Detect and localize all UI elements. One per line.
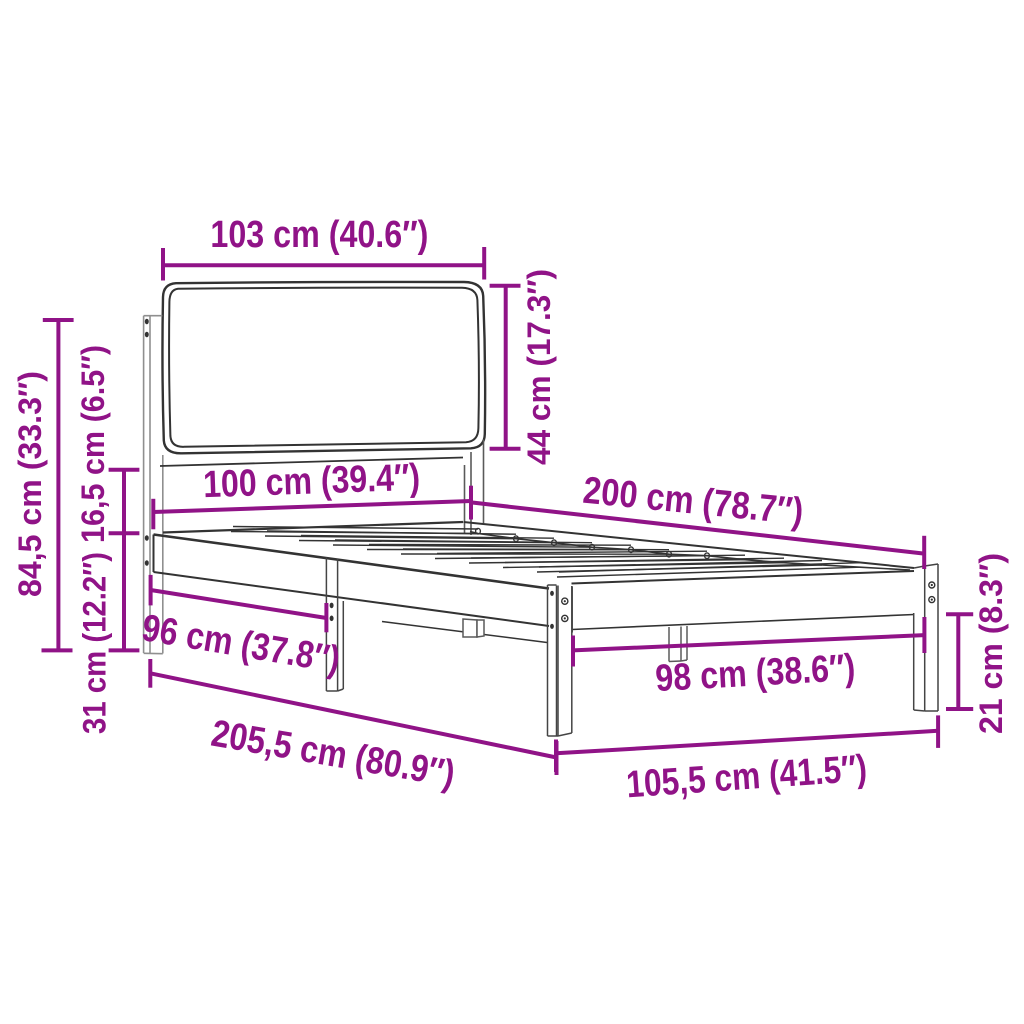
svg-text:105,5 cm (41.5″): 105,5 cm (41.5″) — [625, 748, 868, 807]
svg-text:21 cm (8.3″): 21 cm (8.3″) — [973, 553, 1009, 734]
svg-text:98 cm (38.6″): 98 cm (38.6″) — [654, 647, 856, 700]
svg-text:200 cm (78.7″): 200 cm (78.7″) — [581, 470, 805, 534]
svg-text:205,5 cm (80.9″): 205,5 cm (80.9″) — [208, 713, 458, 796]
svg-text:100 cm (39.4″): 100 cm (39.4″) — [202, 457, 420, 507]
svg-text:103 cm (40.6″): 103 cm (40.6″) — [210, 214, 428, 256]
svg-text:16,5 cm (6.5″): 16,5 cm (6.5″) — [75, 345, 111, 543]
svg-text:31 cm (12.2″): 31 cm (12.2″) — [77, 552, 113, 734]
svg-text:96 cm (37.8″): 96 cm (37.8″) — [139, 607, 343, 681]
svg-text:84,5 cm (33.3″): 84,5 cm (33.3″) — [12, 371, 48, 597]
svg-text:44 cm (17.3″): 44 cm (17.3″) — [521, 269, 557, 465]
